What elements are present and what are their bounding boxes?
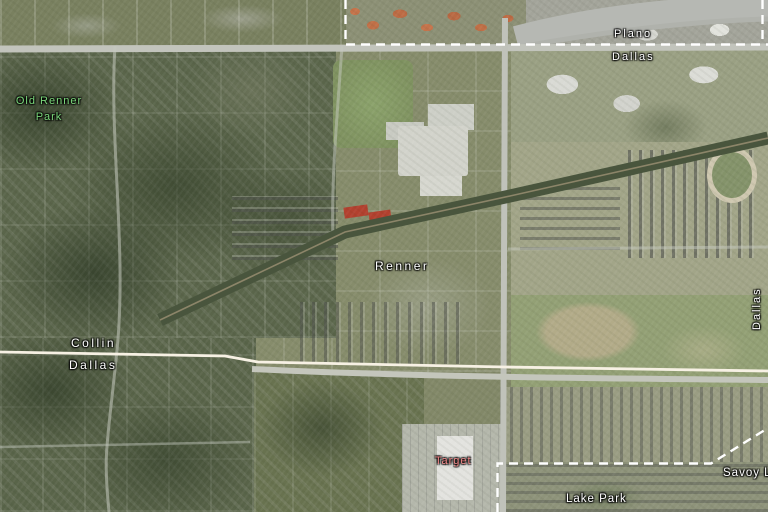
label-renner: Renner (375, 259, 429, 273)
map-overlay-lines (0, 0, 768, 512)
label-old-renner-park-line2: Park (36, 111, 63, 123)
road-main-vertical (503, 18, 505, 512)
label-collin-county: Collin (71, 336, 116, 350)
road-east-horizontal (508, 247, 768, 249)
label-plano: Plano (614, 28, 652, 41)
label-savoy: Savoy L (723, 467, 768, 481)
railroad-tree-corridor (160, 138, 768, 320)
label-lake-park: Lake Park (566, 493, 627, 507)
map-canvas[interactable]: Plano Dallas Old Renner Park Renner Coll… (0, 0, 768, 512)
label-old-renner-park: Old Renner Park (8, 93, 90, 125)
label-target-store: Target (435, 455, 472, 468)
label-old-renner-park-line1: Old Renner (16, 95, 82, 107)
label-dallas-county: Dallas (69, 358, 117, 372)
label-dallas-edge-vertical: Dallas (751, 287, 764, 330)
road-west-vertical (106, 46, 120, 512)
label-dallas-city: Dallas (612, 51, 655, 64)
road-mid-vertical (333, 46, 342, 240)
street-bottom-left (0, 442, 250, 447)
railroad-line (160, 138, 768, 320)
